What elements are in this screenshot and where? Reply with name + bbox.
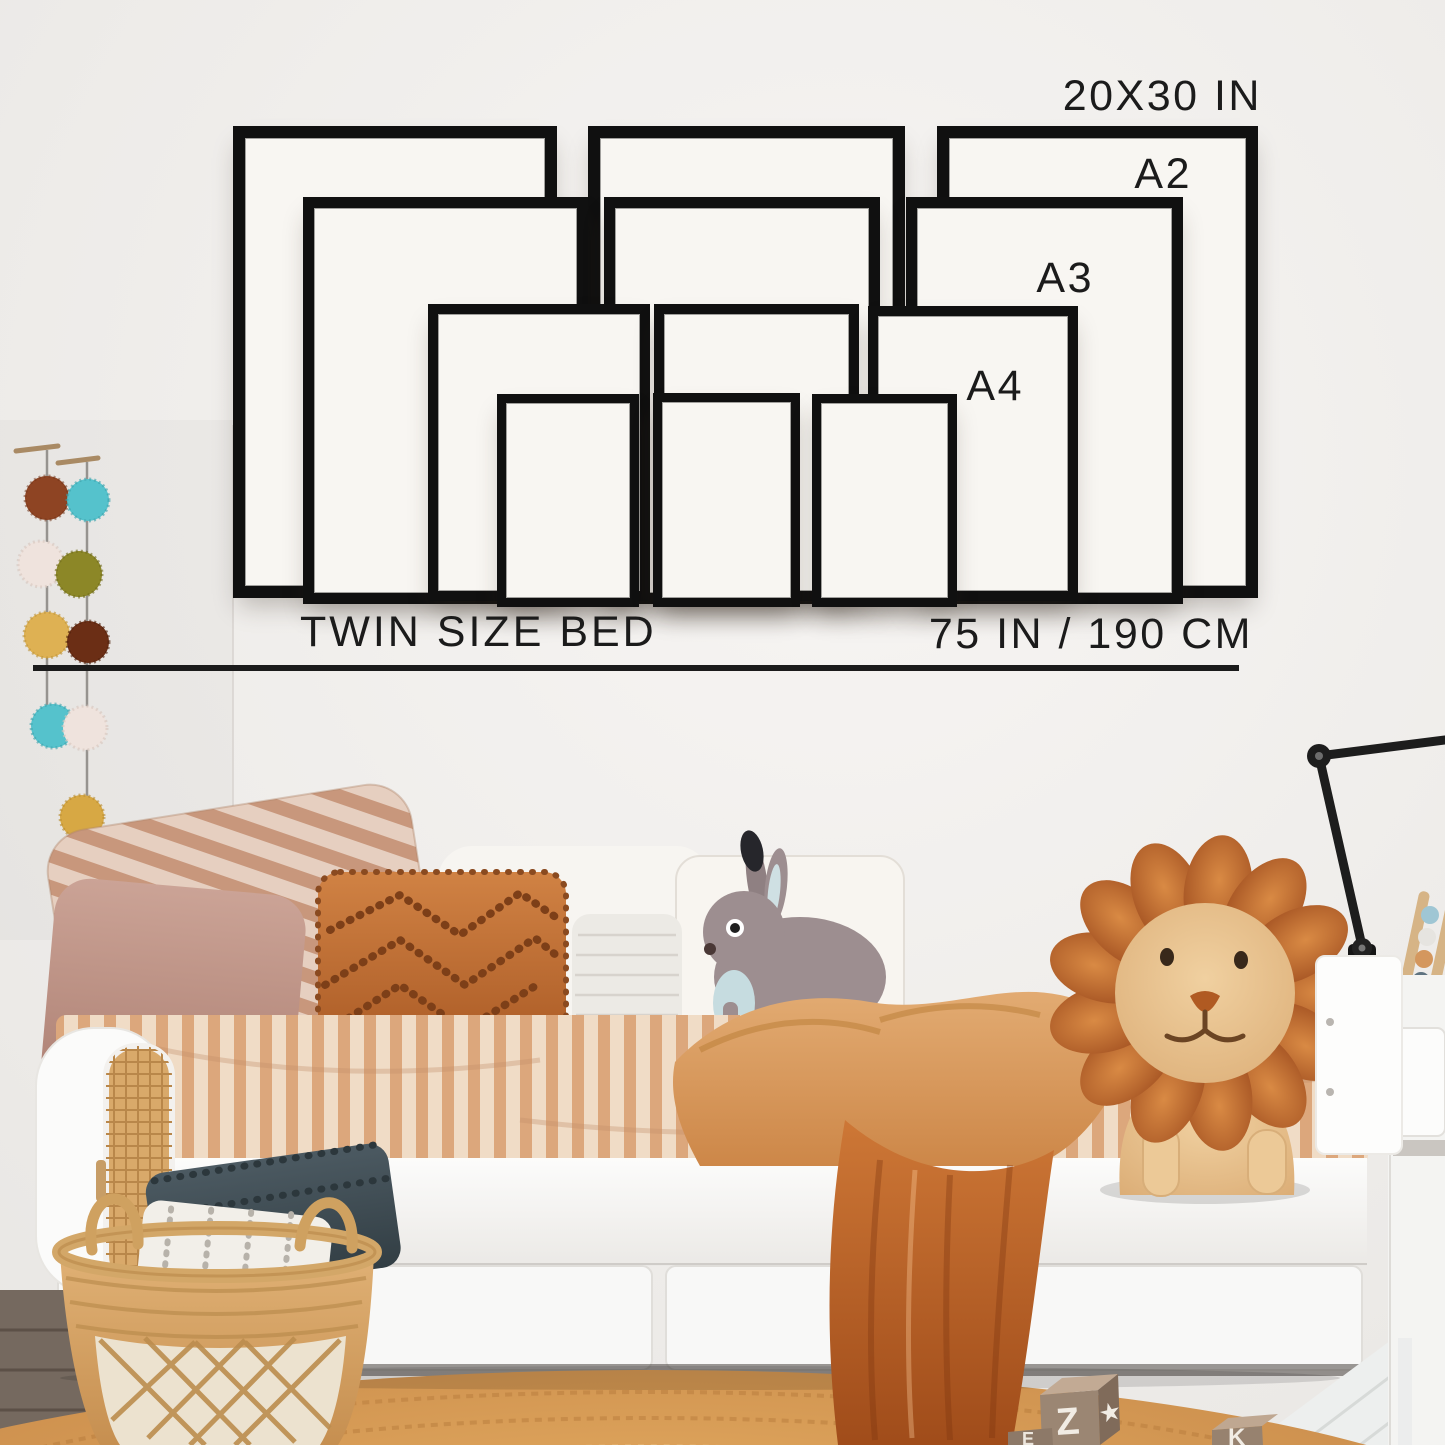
nursery-size-guide-photo: Z ★ E K 20X30 IN A2 A3 A4 TWIN SIZE BED …	[0, 0, 1445, 1445]
size-label-a4: A4	[966, 362, 1024, 411]
block-letter-k: K	[1228, 1424, 1246, 1445]
reference-scale-line	[33, 665, 1239, 671]
block-letter-e: E	[1022, 1429, 1034, 1445]
size-label-a3: A3	[1036, 254, 1094, 303]
reference-bed-label: TWIN SIZE BED	[300, 608, 657, 657]
frame-a4-right	[812, 394, 957, 607]
frame-a4-left	[497, 394, 639, 607]
size-label-20x30: 20X30 IN	[1063, 72, 1262, 121]
reference-length-label: 75 IN / 190 CM	[929, 610, 1253, 659]
frame-a4-middle	[653, 393, 800, 607]
size-label-a2: A2	[1134, 150, 1192, 199]
block-letter-z: Z	[1055, 1400, 1081, 1444]
bed-footboard	[1316, 956, 1402, 1154]
